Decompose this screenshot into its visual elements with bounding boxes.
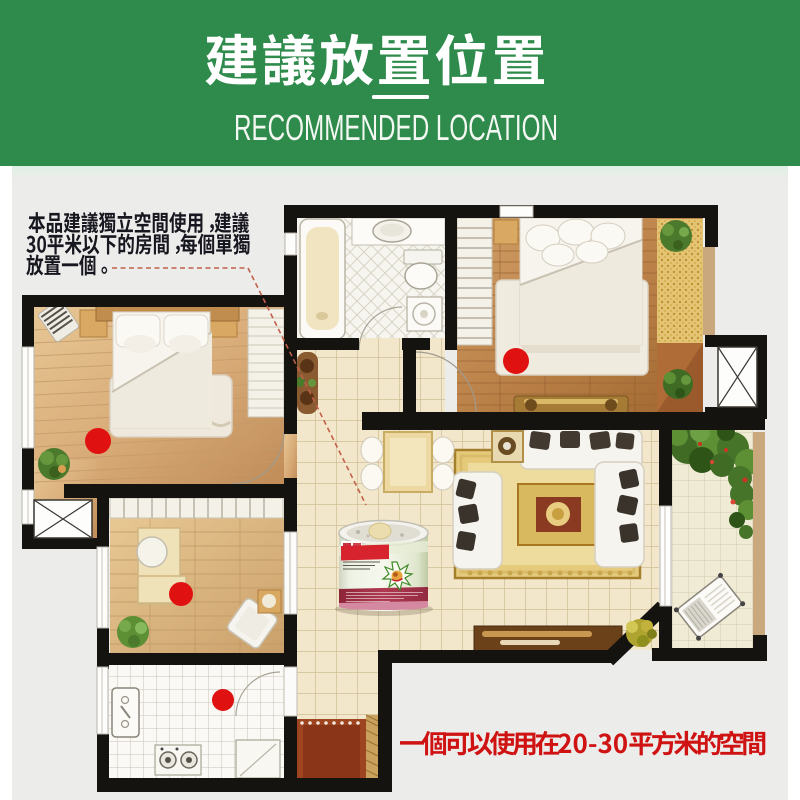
svg-text:RECOMMENDED LOCATION: RECOMMENDED LOCATION	[234, 107, 558, 148]
